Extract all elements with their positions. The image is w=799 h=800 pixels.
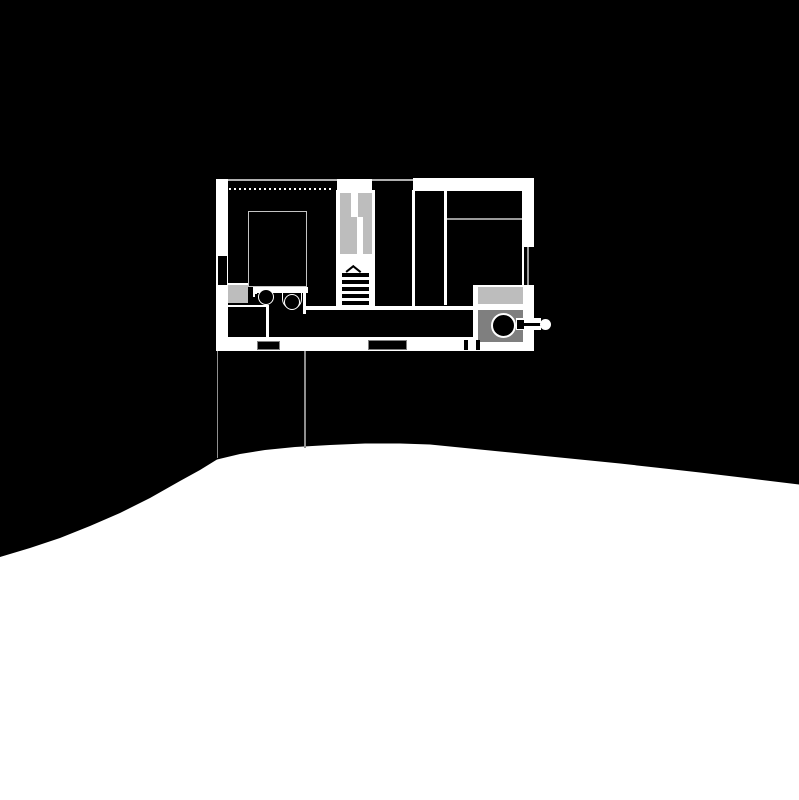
left-wall-upper <box>216 179 228 256</box>
ceiling-dotted-line <box>229 188 333 190</box>
toilet-bowl <box>258 289 274 305</box>
stair-tread <box>342 301 369 305</box>
stair-flight-right-upper <box>358 193 372 217</box>
bed-outline <box>248 211 307 287</box>
closet-block <box>228 307 266 337</box>
shower-box <box>228 285 248 303</box>
stove-body <box>491 313 516 338</box>
counter-edge-line <box>306 306 478 310</box>
right-window-line-outer <box>527 247 529 285</box>
flue-stub <box>517 320 524 329</box>
terrain-hill <box>0 0 799 800</box>
bath-east-wall <box>303 287 306 314</box>
top-wall <box>413 178 534 191</box>
stair-tread <box>342 273 369 277</box>
door-dash-b <box>476 340 480 350</box>
terrain-surface <box>0 444 799 800</box>
door-dash-a <box>464 340 468 350</box>
stair-tread <box>342 287 369 291</box>
projection-line-left <box>217 351 218 458</box>
stair-flight-left-lower <box>340 217 358 254</box>
bedroom-west-wall <box>444 190 447 305</box>
hall-east-wall <box>412 190 415 307</box>
flue-cap <box>540 319 551 330</box>
stair-tread <box>342 280 369 284</box>
site-plan-canvas <box>0 0 799 800</box>
projection-line-right <box>304 351 305 448</box>
left-window-line-outer <box>216 256 218 285</box>
top-wall-line <box>228 179 413 181</box>
sink-bowl <box>284 294 300 310</box>
toilet-tick <box>255 289 257 294</box>
door-mat-south <box>368 340 407 350</box>
stove-shelf <box>478 287 523 304</box>
bed-headboard-line <box>447 218 522 220</box>
door-mat-west <box>257 341 280 350</box>
left-window-line-inner <box>227 256 229 285</box>
right-window-line-inner <box>522 247 524 285</box>
right-wall-upper <box>522 190 534 247</box>
stair-flight-left-upper <box>340 193 352 217</box>
stair-flight-right-lower <box>363 217 372 254</box>
stair-right-wall <box>372 190 375 308</box>
stair-tread <box>342 294 369 298</box>
